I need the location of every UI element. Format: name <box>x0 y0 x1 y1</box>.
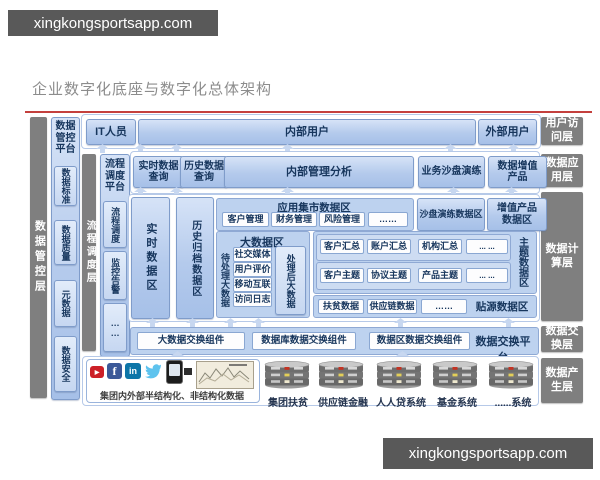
layer-label-data-produce: 数据产生层 <box>541 358 583 403</box>
watermark-bottom: xingkongsportsapp.com <box>383 438 593 469</box>
bigdata-source: 访问日志 <box>233 292 272 307</box>
scheduling-item-more: …… <box>103 303 127 352</box>
layer-label-user-access: 用户访问层 <box>541 117 583 145</box>
slide-canvas: xingkongsportsapp.com xingkongsportsapp.… <box>0 0 600 480</box>
scheduling-platform-title: 流程调度平台 <box>104 159 126 194</box>
server-icon <box>431 361 479 389</box>
watermark-top: xingkongsportsapp.com <box>8 10 218 36</box>
twitter-icon <box>144 363 162 379</box>
app-mart-item: 风险管理 <box>319 212 365 227</box>
exchange-component-bigdata: 大数据交换组件 <box>137 332 245 350</box>
governance-platform-title: 数据管控平台 <box>55 121 77 156</box>
governance-layer-bar: 数据管控层 <box>30 117 47 398</box>
bigdata-source: 移动互联 <box>233 277 272 292</box>
connector-icon <box>184 368 192 375</box>
top-divider-line <box>25 111 592 113</box>
source-item: 扶贫数据 <box>318 299 364 314</box>
theme-topic-item: 产品主题 <box>418 268 462 283</box>
theme-summary-item: 账户汇总 <box>367 239 411 254</box>
theme-zone-label: 主题数据区 <box>512 233 532 290</box>
user-box-it: IT人员 <box>86 119 136 145</box>
exchange-component-database: 数据库数据交换组件 <box>252 332 356 350</box>
governance-item-standard: 数据标准 <box>54 166 77 206</box>
bigdata-source: 用户评价 <box>233 262 272 277</box>
theme-summary-item-more: ... ... <box>466 239 508 254</box>
system-group-poverty: 集团扶贫 <box>263 361 313 409</box>
server-icon <box>263 361 311 389</box>
theme-summary-item: 客户汇总 <box>320 239 364 254</box>
linkedin-icon: in <box>125 363 141 379</box>
layer-label-data-exchange: 数据交换层 <box>541 326 583 352</box>
youtube-icon: ▶ <box>90 366 104 378</box>
theme-summary-item: 机构汇总 <box>418 239 462 254</box>
bigdata-processed-box: 处理后大数据 <box>275 246 306 315</box>
theme-topic-item-more: ... ... <box>466 268 508 283</box>
user-box-internal: 内部用户 <box>138 119 476 145</box>
layer-label-data-compute: 数据计算层 <box>541 192 583 321</box>
governance-item-quality: 数据质量 <box>54 220 77 265</box>
scheduling-item-dispatch: 流程调度 <box>103 201 127 248</box>
app-box-value-products: 数据增值产品 <box>488 156 547 188</box>
zone-realtime-data: 实时数据区 <box>131 197 170 319</box>
governance-item-metadata: 元数据 <box>54 280 77 327</box>
scheduling-layer-bar: 流程调度层 <box>82 154 96 351</box>
bigdata-pending-label: 待处理大数据 <box>219 247 232 313</box>
facebook-icon: f <box>107 363 122 379</box>
server-icon <box>375 361 423 389</box>
app-box-realtime-query: 实时数据查询 <box>133 156 184 188</box>
system-group-more: ......系统 <box>487 361 539 409</box>
zone-archive-data: 历史归档数据区 <box>176 197 214 319</box>
zone-value-product-data: 增值产品数据区 <box>487 198 547 231</box>
app-mart-item-more: …… <box>368 212 408 227</box>
system-group-p2p: 人人贷系统 <box>375 361 427 409</box>
scheduling-item-monitor: 监控告警 <box>103 251 127 300</box>
exchange-component-datazone: 数据区数据交换组件 <box>369 332 470 350</box>
system-group-fund: 基金系统 <box>431 361 483 409</box>
source-zone-label: 贴源数据区 <box>473 299 531 314</box>
theme-topic-item: 客户主题 <box>320 268 364 283</box>
source-item-more: …… <box>421 299 467 314</box>
user-box-external: 外部用户 <box>478 119 537 145</box>
layer-label-data-app: 数据应用层 <box>541 154 583 187</box>
mobile-device-icon <box>166 360 183 384</box>
watermark-top-text: xingkongsportsapp.com <box>34 15 192 32</box>
governance-item-security: 数据安全 <box>54 336 77 392</box>
app-mart-item: 客户管理 <box>222 212 269 227</box>
app-box-sandbox: 业务沙盘演练 <box>418 156 485 188</box>
line-chart-icon <box>196 361 254 389</box>
system-group-supplychain: 供应链金融 <box>317 361 369 409</box>
page-title: 企业数字化底座与数字化总体架构 <box>32 78 272 99</box>
app-mart-item: 财务管理 <box>271 212 317 227</box>
theme-topic-item: 协议主题 <box>367 268 411 283</box>
server-icon <box>487 361 535 389</box>
unstructured-data-caption: 集团内外部半结构化、非结构化数据 <box>88 389 256 402</box>
source-item: 供应链数据 <box>367 299 417 314</box>
server-icon <box>317 361 365 389</box>
app-box-history-query: 历史数据查询 <box>180 156 228 188</box>
watermark-bottom-text: xingkongsportsapp.com <box>409 445 567 462</box>
bigdata-source: 社交媒体 <box>233 247 272 262</box>
app-box-mgmt-analysis: 内部管理分析 <box>224 156 414 188</box>
zone-sandbox-data: 沙盘演练数据区 <box>417 198 485 231</box>
